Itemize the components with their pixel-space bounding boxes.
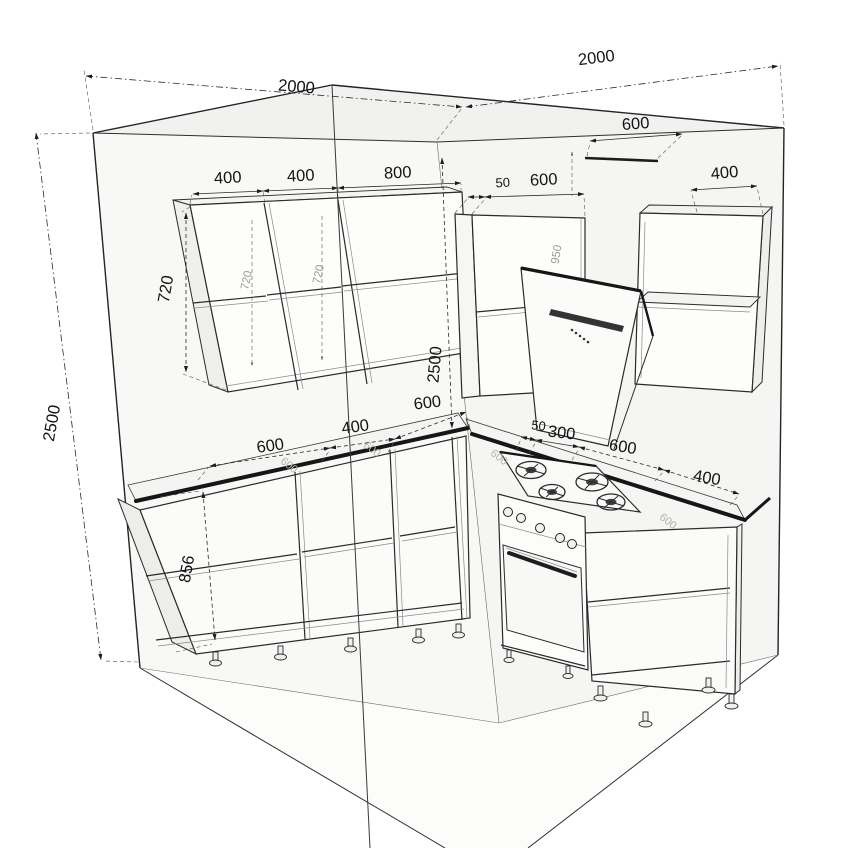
svg-text:400: 400: [340, 416, 370, 438]
svg-text:300: 300: [547, 422, 577, 443]
svg-text:400: 400: [214, 168, 242, 187]
svg-text:600: 600: [621, 114, 650, 134]
svg-text:600: 600: [413, 392, 443, 413]
svg-text:50: 50: [495, 175, 510, 191]
svg-text:2000: 2000: [277, 76, 315, 97]
svg-text:400: 400: [287, 166, 315, 185]
svg-text:400: 400: [710, 163, 739, 183]
svg-text:600: 600: [530, 170, 558, 189]
kitchen-drawing-canvas: 720 720 950: [0, 0, 852, 848]
upper-cabinet-right-400: [635, 205, 772, 392]
svg-text:600: 600: [255, 435, 285, 457]
svg-text:2000: 2000: [577, 47, 616, 69]
svg-text:50: 50: [530, 417, 546, 434]
svg-text:2500: 2500: [40, 403, 64, 442]
svg-text:800: 800: [384, 163, 412, 182]
svg-text:2500: 2500: [424, 345, 445, 383]
